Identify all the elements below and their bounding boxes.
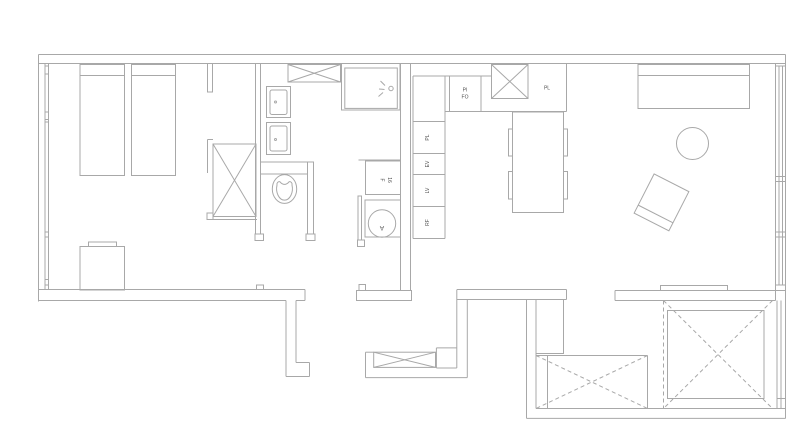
svg-text:LV: LV	[425, 187, 431, 193]
svg-text:PI: PI	[463, 88, 468, 94]
svg-text:F: F	[379, 178, 385, 181]
svg-text:16: 16	[386, 177, 392, 183]
svg-text:A: A	[379, 224, 384, 231]
svg-text:RF: RF	[425, 219, 431, 226]
svg-text:PL: PL	[425, 134, 431, 140]
svg-text:PL: PL	[544, 86, 550, 92]
svg-text:EV: EV	[425, 160, 431, 167]
svg-text:FO: FO	[462, 95, 469, 101]
